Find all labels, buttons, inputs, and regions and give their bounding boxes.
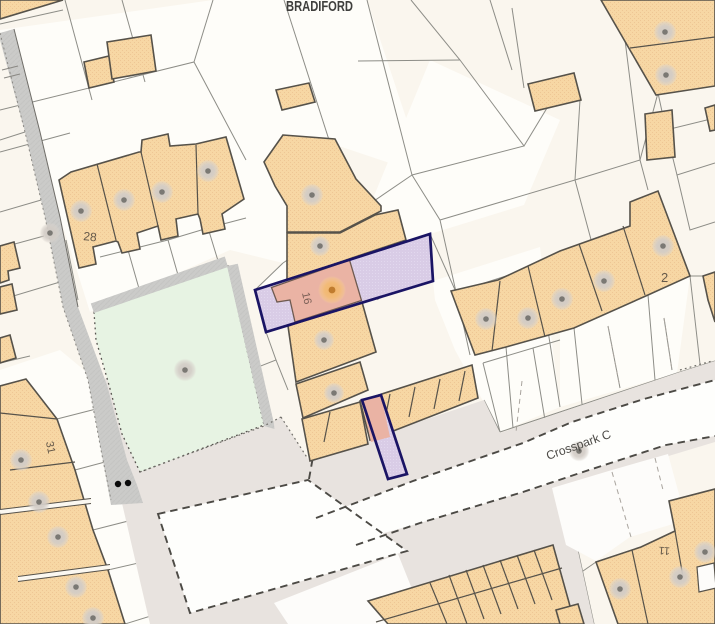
svg-text:BRADIFORD: BRADIFORD xyxy=(286,0,353,15)
svg-text:28: 28 xyxy=(83,229,98,244)
svg-text:2: 2 xyxy=(661,270,668,285)
svg-text:16: 16 xyxy=(299,291,313,305)
svg-text:11: 11 xyxy=(658,544,670,557)
svg-text:31: 31 xyxy=(43,440,57,454)
